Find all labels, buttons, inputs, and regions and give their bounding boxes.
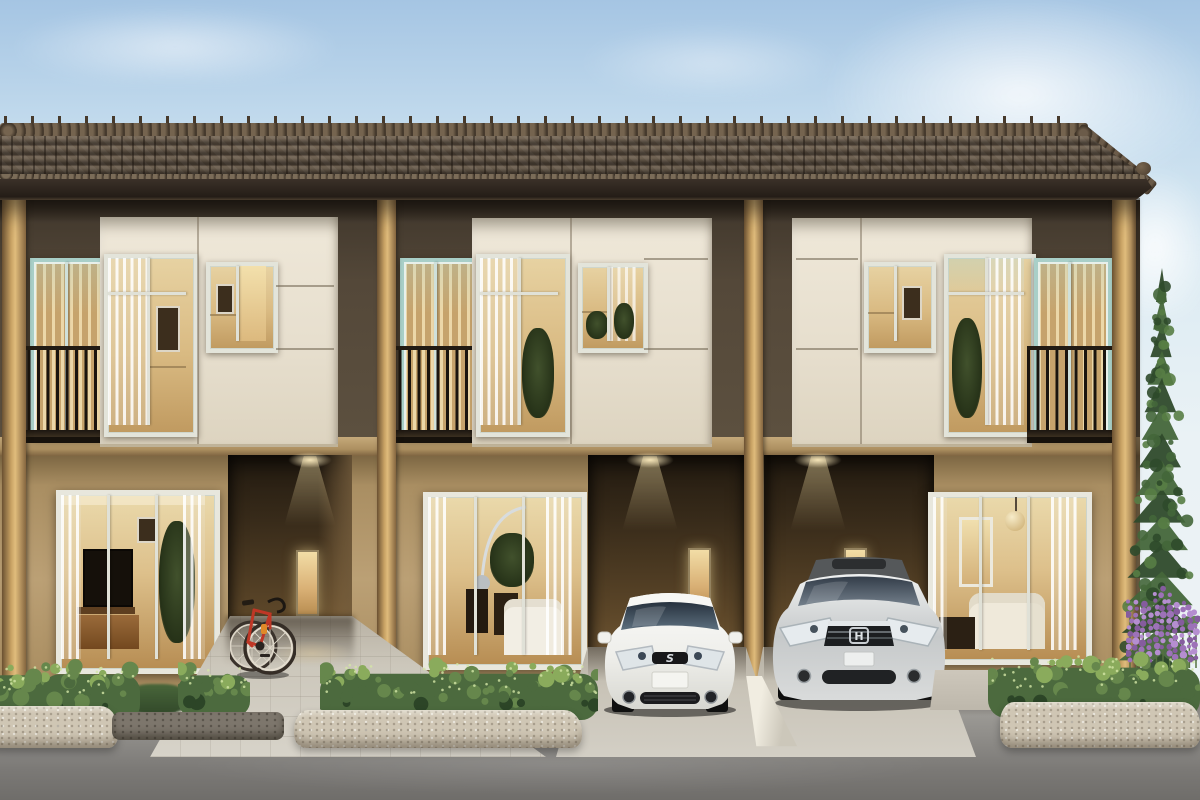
window-mullion	[979, 497, 982, 650]
panel-groove	[570, 218, 572, 444]
stone-curb-right	[1000, 702, 1200, 748]
right-unit-balcony-railing	[1027, 346, 1113, 443]
interior-art-frame	[137, 517, 157, 543]
roof-tile-field	[0, 136, 1150, 179]
townhouse-street-scene: S H	[0, 0, 1200, 800]
panel-groove	[276, 285, 334, 287]
svg-text:H: H	[854, 630, 863, 643]
interior-plant	[952, 318, 982, 418]
facade-pillar-left	[2, 198, 26, 702]
roof-ridge-cap	[0, 123, 1088, 138]
window-mullion	[522, 497, 525, 655]
middle-unit-balcony-floor	[389, 430, 475, 437]
middle-unit-upper-tall-window	[476, 254, 570, 437]
stone-curb-left-shadowed	[112, 712, 284, 740]
cloud-wisp-left	[10, 6, 340, 80]
lit-pane	[240, 266, 266, 341]
left-unit-upper-tall-window	[104, 254, 198, 437]
middle-unit-upper-small-window	[578, 263, 648, 353]
window-transom	[108, 292, 186, 295]
window-mullion	[474, 497, 477, 655]
window-mullion	[894, 266, 897, 341]
window-mullion	[107, 495, 110, 659]
curtain	[428, 497, 446, 655]
curtain	[61, 495, 81, 659]
panel-groove	[644, 348, 708, 350]
left-unit-balcony-railing	[18, 346, 106, 443]
downlight	[626, 452, 674, 468]
right-unit-upper-small-window	[864, 262, 936, 353]
curtain	[546, 497, 572, 655]
interior-chair	[466, 589, 488, 633]
panel-groove	[796, 348, 858, 350]
stone-curb-left	[0, 706, 118, 748]
interior-wainscot	[210, 314, 237, 316]
panel-groove	[197, 217, 199, 444]
window-transom	[480, 292, 558, 295]
roof-hip-finial	[1136, 162, 1151, 175]
entry-slot-window	[296, 550, 319, 616]
panel-groove	[796, 258, 858, 260]
window-mullion	[147, 258, 150, 425]
right-unit-balcony-floor	[1027, 430, 1113, 437]
interior-tv-stand	[77, 607, 135, 614]
left-unit-living-window	[56, 490, 220, 674]
curtain	[480, 258, 518, 425]
facade-pillar-2	[744, 198, 763, 702]
panel-groove	[276, 348, 334, 350]
panel-groove	[860, 218, 862, 444]
window-mullion	[236, 266, 239, 341]
left-unit-upper-small-window	[206, 262, 278, 353]
right-unit-living-window	[928, 492, 1092, 665]
interior-plant	[522, 328, 554, 418]
window-transom	[948, 292, 1024, 295]
interior-pendant-lamp	[1005, 511, 1025, 531]
middle-unit-balcony-railing	[389, 346, 475, 443]
interior-art-frame	[216, 284, 234, 314]
suzuki-s-logo: S	[666, 652, 674, 665]
downlight	[794, 452, 842, 468]
white-hatchback: S	[596, 580, 744, 718]
curtain	[1051, 497, 1077, 650]
facade-pillar-1	[377, 198, 396, 702]
interior-plant	[614, 303, 634, 339]
interior-plant	[490, 533, 534, 587]
right-unit-upper-tall-window	[944, 254, 1036, 437]
left-unit-balcony-floor	[18, 430, 106, 437]
window-mullion	[518, 258, 521, 425]
interior-wainscot	[868, 312, 895, 314]
stone-curb-middle	[294, 710, 582, 748]
window-mullion	[607, 267, 610, 341]
cloud-wisp-center	[580, 24, 840, 94]
interior-plant	[586, 311, 608, 339]
curtain	[183, 495, 205, 659]
interior-back-window	[959, 517, 993, 587]
interior-art-frame	[902, 286, 922, 320]
curtain	[988, 258, 1024, 425]
curtain	[108, 258, 148, 425]
middle-unit-living-window	[423, 492, 587, 670]
interior-wainscot	[148, 366, 186, 368]
window-mullion	[985, 258, 988, 425]
silver-sedan: H	[766, 554, 952, 712]
window-mullion	[1027, 497, 1030, 650]
panel-groove	[644, 258, 708, 260]
window-mullion	[155, 495, 158, 659]
interior-art-frame	[156, 306, 180, 352]
hedge-left-c	[178, 658, 250, 716]
roof-fascia	[0, 179, 1152, 200]
